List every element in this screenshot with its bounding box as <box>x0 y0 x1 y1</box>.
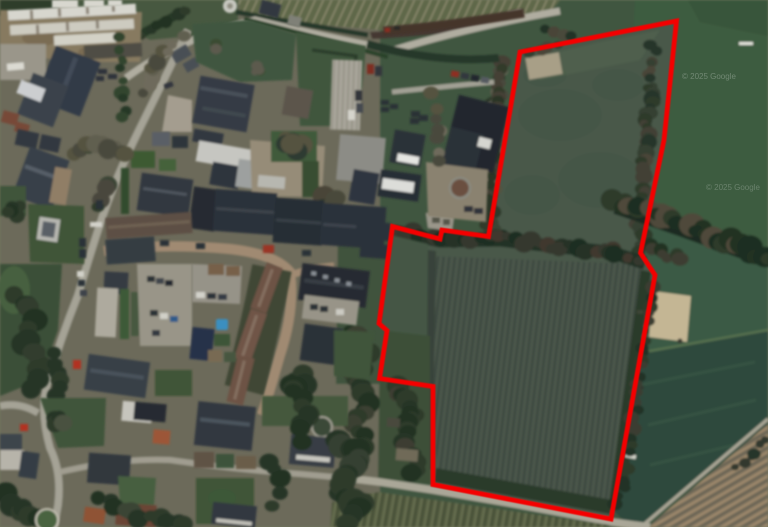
svg-text:© 2025 Google: © 2025 Google <box>682 72 736 81</box>
svg-text:© 2025 Google: © 2025 Google <box>706 183 760 192</box>
